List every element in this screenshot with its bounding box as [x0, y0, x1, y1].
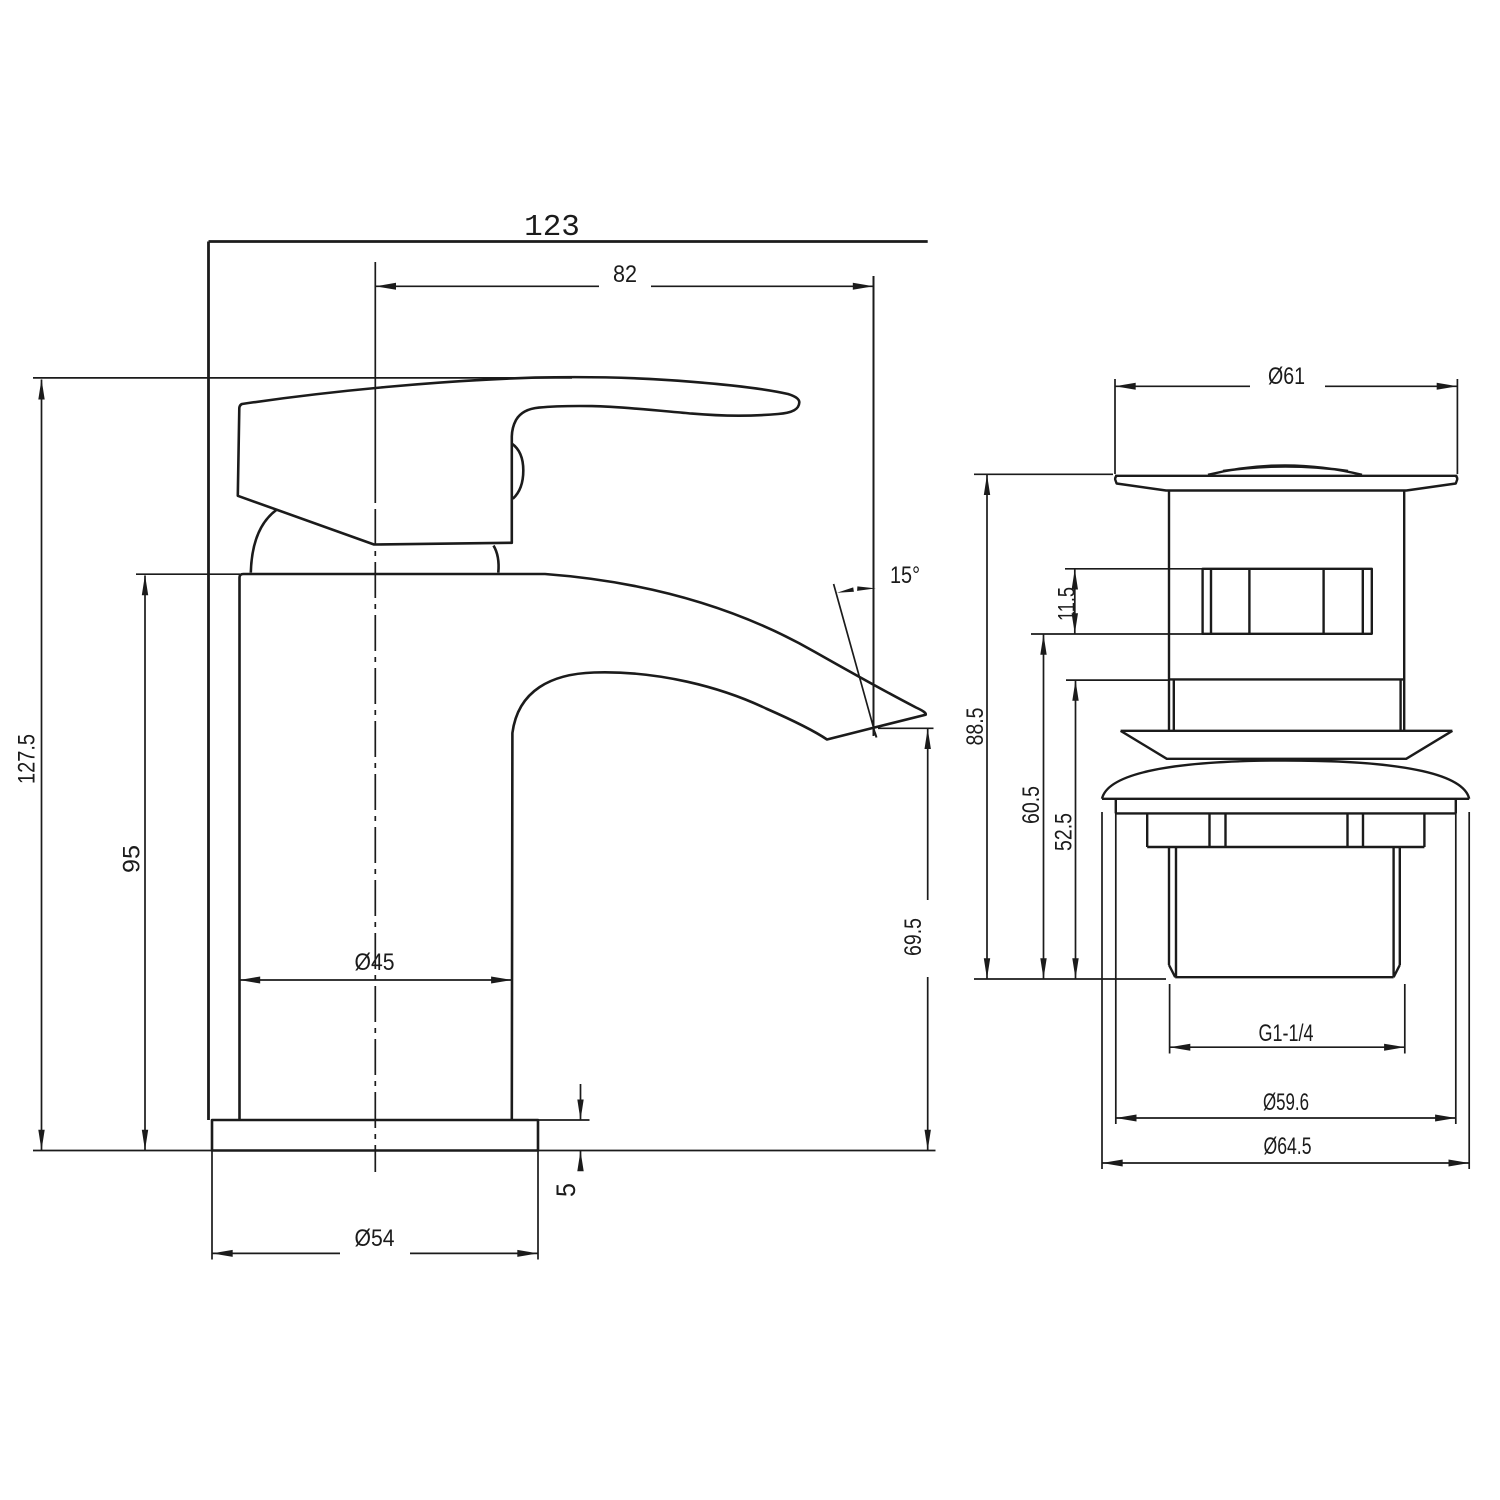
svg-text:11.5: 11.5 [1054, 587, 1081, 621]
svg-text:15°: 15° [890, 562, 920, 589]
svg-text:Ø61: Ø61 [1268, 363, 1305, 390]
svg-text:127.5: 127.5 [14, 734, 41, 784]
svg-text:123: 123 [524, 210, 580, 245]
svg-text:52.5: 52.5 [1050, 813, 1077, 851]
svg-text:69.5: 69.5 [900, 918, 927, 956]
svg-text:88.5: 88.5 [962, 708, 989, 746]
svg-text:Ø45: Ø45 [355, 949, 395, 976]
svg-text:60.5: 60.5 [1018, 786, 1045, 824]
svg-text:5: 5 [551, 1183, 581, 1197]
svg-text:G1-1/4: G1-1/4 [1259, 1020, 1314, 1047]
svg-text:95: 95 [119, 845, 146, 873]
svg-text:Ø54: Ø54 [355, 1225, 395, 1252]
svg-text:Ø64.5: Ø64.5 [1264, 1133, 1312, 1160]
svg-text:82: 82 [613, 261, 637, 288]
svg-text:Ø59.6: Ø59.6 [1263, 1089, 1309, 1116]
